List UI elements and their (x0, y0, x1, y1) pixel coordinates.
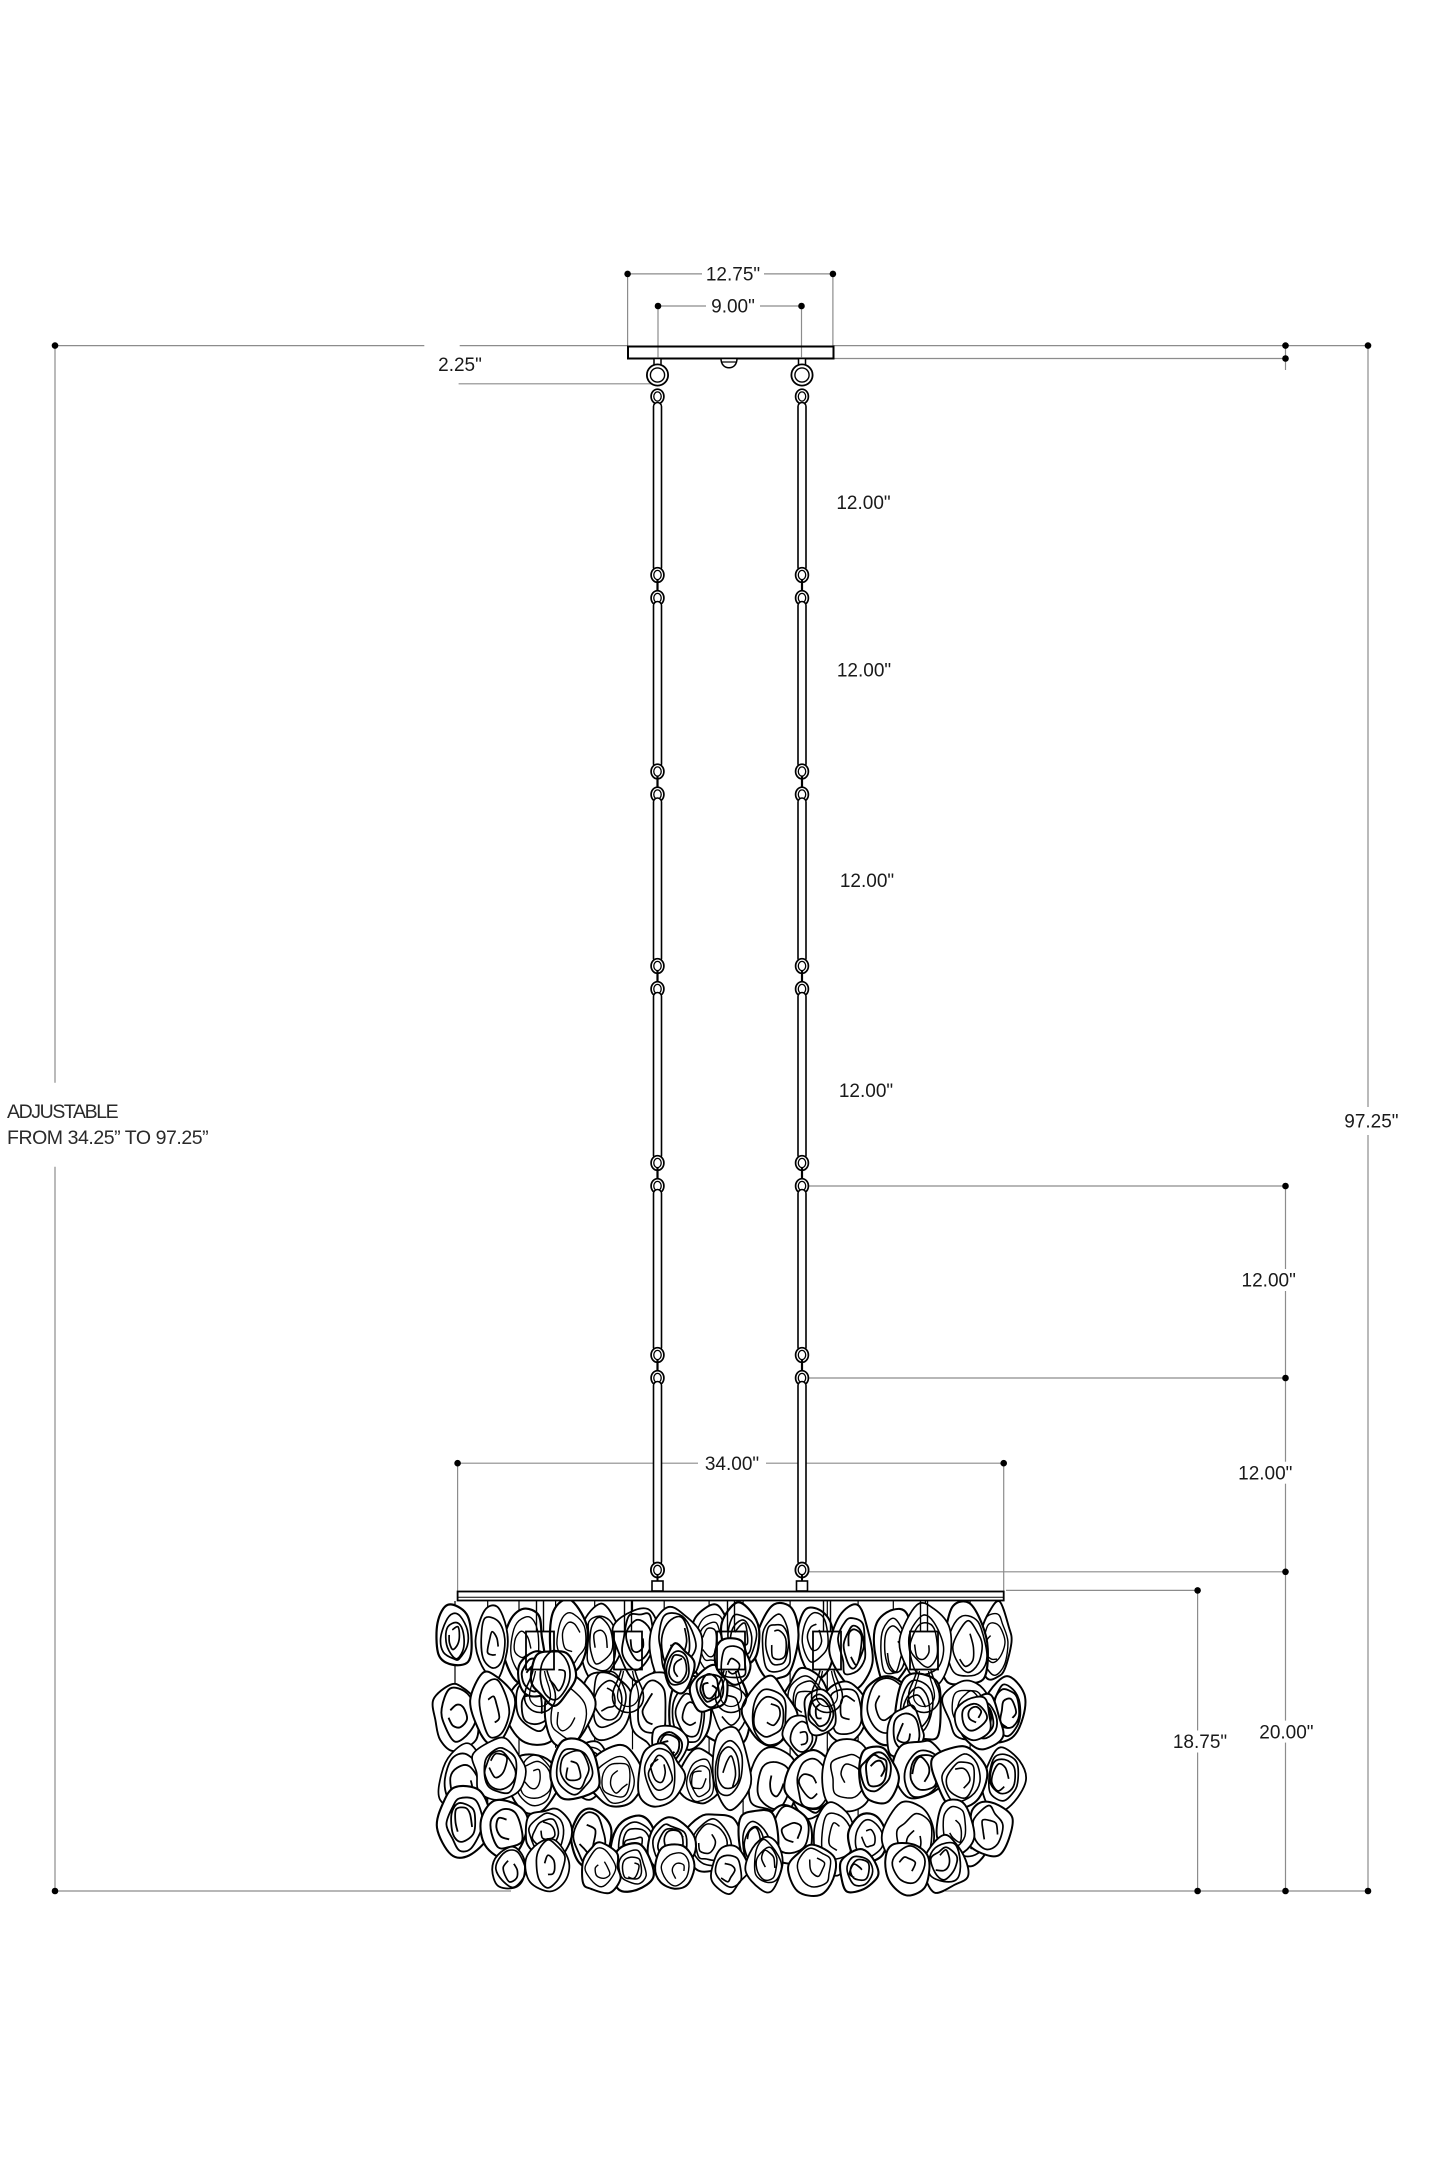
svg-text:2.25": 2.25" (438, 355, 482, 376)
svg-text:97.25": 97.25" (1344, 1112, 1398, 1133)
svg-text:12.00": 12.00" (839, 1081, 893, 1102)
svg-text:20.00": 20.00" (1259, 1722, 1313, 1743)
svg-text:18.75": 18.75" (1173, 1732, 1227, 1753)
svg-text:FROM 34.25” TO 97.25”: FROM 34.25” TO 97.25” (7, 1127, 208, 1149)
svg-text:12.00": 12.00" (837, 661, 891, 682)
svg-text:34.00": 34.00" (705, 1454, 759, 1475)
svg-text:12.00": 12.00" (836, 493, 890, 514)
svg-text:12.00": 12.00" (840, 871, 894, 892)
svg-text:9.00": 9.00" (711, 297, 755, 318)
svg-text:ADJUSTABLE: ADJUSTABLE (7, 1101, 119, 1123)
svg-text:12.00": 12.00" (1238, 1463, 1292, 1484)
svg-text:12.75": 12.75" (706, 265, 760, 286)
svg-text:12.00": 12.00" (1242, 1271, 1296, 1292)
